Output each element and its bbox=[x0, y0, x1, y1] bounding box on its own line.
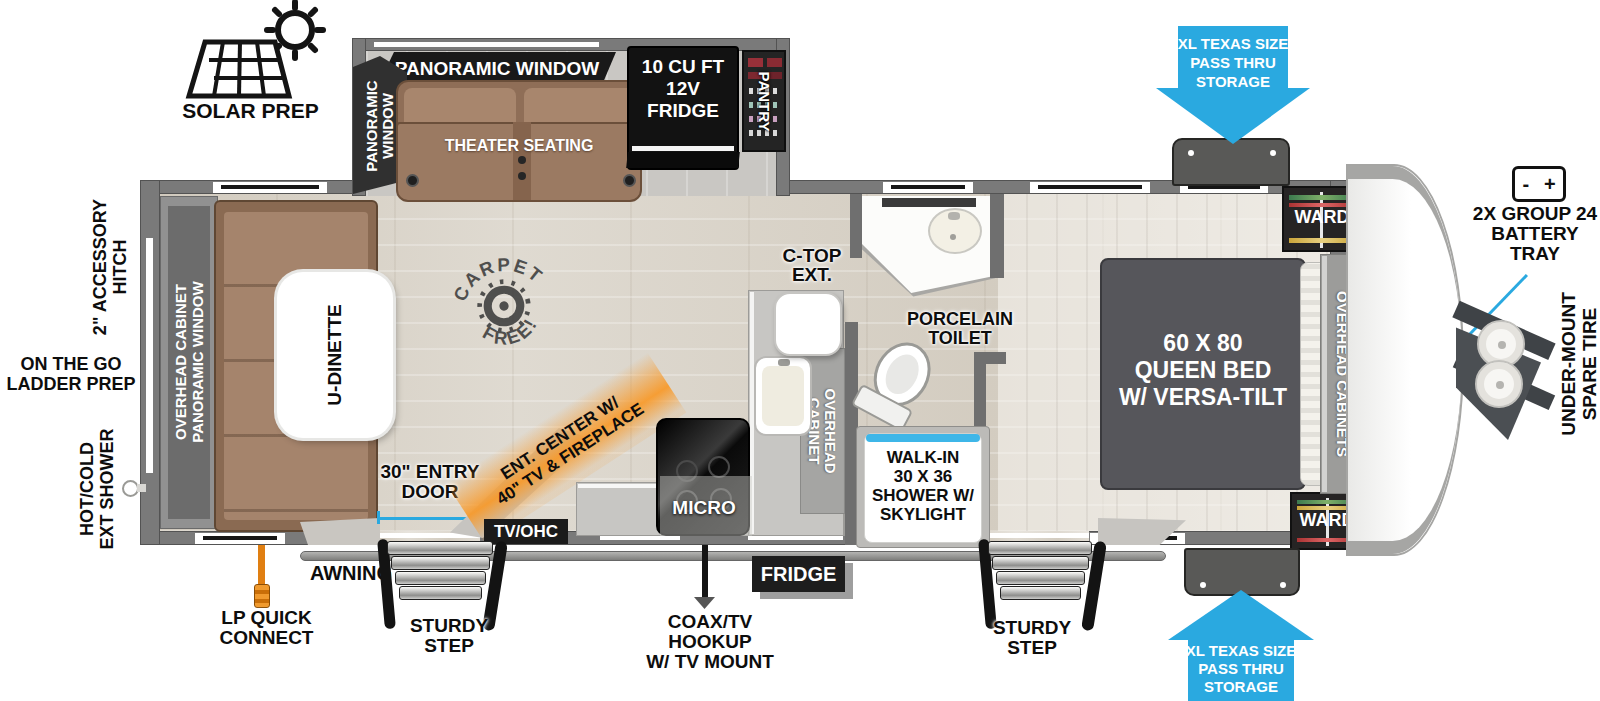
ext-shower-knob-stem bbox=[137, 484, 146, 492]
shower-skylight-strip bbox=[866, 434, 980, 442]
countertop-extension bbox=[774, 292, 842, 356]
window-bottom-1 bbox=[195, 533, 285, 544]
svg-text:CARPET: CARPET bbox=[446, 248, 551, 308]
cupholder-2 bbox=[518, 172, 526, 180]
cupholder-1 bbox=[518, 156, 526, 164]
entry-landing bbox=[300, 518, 380, 545]
step-tread bbox=[992, 556, 1089, 570]
armrest-button-right bbox=[623, 174, 636, 187]
window-top-3 bbox=[1030, 182, 1150, 193]
coax-tip bbox=[694, 597, 715, 609]
ctop-ext-label: C-TOP EXT. bbox=[766, 246, 858, 284]
coax-stem bbox=[702, 545, 708, 599]
step-tread bbox=[996, 571, 1085, 585]
bathroom-faucet bbox=[948, 212, 960, 220]
fridge-12v-label: 10 CU FT 12V FRIDGE bbox=[627, 56, 739, 122]
spare-tire-1-hub bbox=[1498, 341, 1506, 349]
screw-4 bbox=[1280, 582, 1286, 588]
shower-label: WALK-IN 30 X 36 SHOWER W/ SKYLIGHT bbox=[864, 448, 982, 524]
carpet-free-stamp: CARPET FREE! bbox=[446, 248, 562, 364]
battery-plus: + bbox=[1544, 173, 1556, 196]
ext-shower-label: HOT/COLD EXT SHOWER bbox=[77, 419, 117, 559]
bedroom-overhead-cabinets-edge bbox=[1322, 256, 1327, 492]
sturdy-step-label-left: STURDY STEP bbox=[389, 616, 509, 656]
toilet-label: PORCELAIN TOILET bbox=[890, 310, 1030, 348]
bedroom-door-sill bbox=[985, 533, 1089, 538]
spare-tire-2 bbox=[1475, 360, 1523, 408]
fridge-12v-trim bbox=[632, 146, 734, 151]
kitchen-faucet bbox=[778, 359, 790, 366]
rear-overhead-cabinet-label: OVERHEAD CABINET PANORAMIC WINDOW bbox=[169, 207, 209, 517]
pantry-label: PANTRY bbox=[755, 55, 774, 149]
lp-connector bbox=[254, 584, 270, 608]
bathroom-wall-2 bbox=[990, 194, 1004, 278]
spare-tire-2-hub bbox=[1496, 381, 1504, 389]
dinette-label: U-DINETTE bbox=[323, 275, 347, 435]
bathroom-sink-drain bbox=[950, 234, 956, 240]
arrow-down-icon bbox=[1156, 88, 1310, 144]
theater-seating-label: THEATER SEATING bbox=[399, 138, 639, 155]
ladder-prep-label: ON THE GO LADDER PREP bbox=[0, 354, 142, 394]
step-tread bbox=[395, 571, 486, 585]
bed-label: 60 X 80 QUEEN BED W/ VERSA-TILT bbox=[1100, 330, 1306, 411]
solar-prep-icon bbox=[183, 0, 348, 103]
entry-door-dimension-tick-left bbox=[377, 511, 380, 524]
under-mount-spare-tire-label: UNDER-MOUNT SPARE TIRE bbox=[1557, 288, 1600, 440]
solar-prep-label: SOLAR PREP bbox=[168, 100, 333, 122]
step-tread bbox=[1000, 586, 1081, 600]
window-rear bbox=[146, 238, 153, 473]
micro-label: MICRO bbox=[664, 498, 744, 518]
vanity-mirror bbox=[882, 198, 976, 207]
tv-ohc-label: TV/OHC bbox=[484, 519, 568, 544]
pass-thru-label-bottom: XL TEXAS SIZE PASS THRU STORAGE bbox=[1178, 642, 1304, 696]
sturdy-step-label-right: STURDY STEP bbox=[972, 618, 1092, 658]
arrow-up-icon bbox=[1168, 590, 1314, 640]
screw-3 bbox=[1200, 582, 1206, 588]
carpet-stamp-top-text: CARPET bbox=[446, 248, 551, 308]
panoramic-window-side-label: PANORAMIC WINDOW bbox=[363, 56, 397, 196]
step-tread bbox=[391, 556, 490, 570]
window-top-2 bbox=[883, 182, 973, 193]
floorplan-canvas: OVERHEAD CABINET PANORAMIC WINDOW U-DINE… bbox=[0, 0, 1600, 701]
burner-2 bbox=[708, 456, 730, 478]
screw-2 bbox=[1270, 150, 1276, 156]
bathroom-wall-1 bbox=[850, 194, 862, 258]
step-tread bbox=[988, 541, 1092, 555]
lp-pipe bbox=[258, 545, 265, 589]
fridge-tag: FRIDGE bbox=[752, 556, 845, 592]
screw-1 bbox=[1188, 150, 1194, 156]
battery-icon: - + bbox=[1512, 166, 1566, 202]
battery-minus: - bbox=[1522, 173, 1529, 196]
lp-quick-connect-label: LP QUICK CONNECT bbox=[194, 608, 339, 648]
step-tread bbox=[387, 541, 493, 555]
window-top-1 bbox=[213, 182, 327, 193]
front-cap-trim bbox=[1348, 166, 1462, 554]
accessory-hitch-label: 2" ACCESSORY HITCH bbox=[90, 191, 130, 343]
battery-tray-label: 2X GROUP 24 BATTERY TRAY bbox=[1466, 204, 1600, 264]
front-cap bbox=[1346, 164, 1464, 556]
armrest-button-left bbox=[406, 174, 419, 187]
slideout-trim bbox=[374, 42, 599, 47]
pass-thru-box-top bbox=[1172, 138, 1290, 186]
pass-thru-box-bottom bbox=[1184, 548, 1300, 596]
pass-thru-label-top: XL TEXAS SIZE PASS THRU STORAGE bbox=[1170, 34, 1296, 91]
fridge-12v-base bbox=[626, 152, 740, 168]
coax-label: COAX/TV HOOKUP W/ TV MOUNT bbox=[625, 612, 795, 672]
step-tread bbox=[399, 586, 482, 600]
kitchen-sink-basin bbox=[762, 366, 804, 426]
